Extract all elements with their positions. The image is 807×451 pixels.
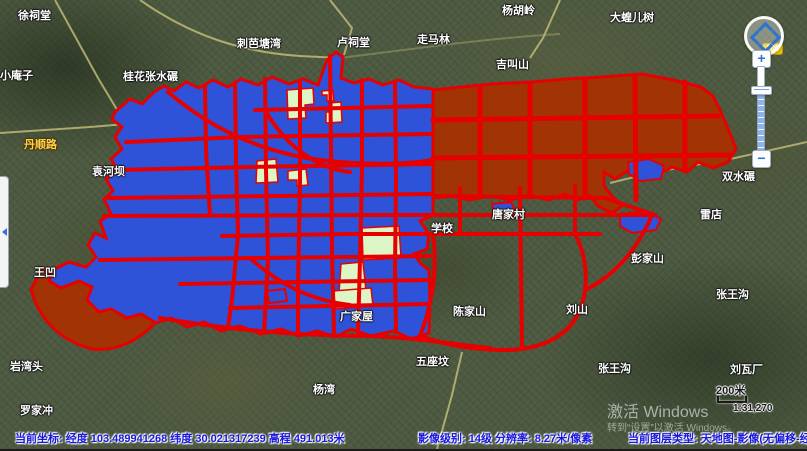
map-place-label: 岩湾头: [10, 358, 43, 374]
map-place-label: 张王沟: [716, 286, 749, 302]
status-image-info: 影像级别: 14级 分辨率: 8.27米/像素: [418, 430, 592, 446]
map-place-label: 大蝗儿树: [610, 9, 654, 25]
scale-bar-icon: [717, 396, 747, 403]
map-place-label: 徐祠堂: [18, 7, 51, 23]
map-place-label: 彭家山: [631, 250, 664, 266]
map-place-label: 广家屋: [340, 308, 373, 324]
map-place-label: 刘山: [566, 301, 588, 317]
map-place-label: 五座坟: [416, 353, 449, 369]
planning-overlay-layer: [0, 0, 807, 449]
scale-ratio-label: 1:31,270: [733, 403, 772, 414]
zoom-slider-track-lower[interactable]: [757, 93, 765, 153]
map-place-label: 雷店: [700, 206, 722, 222]
map-place-label: 王凹: [34, 264, 56, 280]
sidebar-collapse-tab[interactable]: [0, 176, 9, 288]
map-place-label: 刘瓦厂: [730, 361, 763, 377]
map-place-label: 双水碾: [722, 168, 755, 184]
map-place-label: 张王沟: [598, 360, 631, 376]
map-place-label: 罗家冲: [20, 402, 53, 418]
status-coordinates: 当前坐标: 经度 103.489941268 纬度 30.021317239 高…: [15, 430, 345, 446]
map-place-label: 吉叫山: [496, 56, 529, 72]
map-place-label: 卢祠堂: [337, 34, 370, 50]
map-place-label: 走马林: [417, 31, 450, 47]
map-place-label: 袁河坝: [92, 163, 125, 179]
map-window: 徐祠堂 小庵子 桂花张水碾 刺芭塘湾 卢祠堂 走马林 杨胡岭 大蝗儿树 吉叫山 …: [0, 0, 807, 451]
map-place-label: 小庵子: [0, 67, 33, 83]
zoom-slider-handle[interactable]: [751, 86, 772, 95]
map-place-label: 杨胡岭: [502, 2, 535, 18]
zoom-out-button[interactable]: −: [752, 150, 771, 168]
map-place-label: 刺芭塘湾: [237, 35, 281, 51]
map-road-label: 丹顺路: [24, 136, 57, 152]
map-place-label: 唐家村: [492, 206, 525, 222]
status-layer-info: 当前图层类型: 天地图-影像(无偏移-经: [628, 430, 807, 446]
map-place-label: 桂花张水碾: [123, 68, 178, 84]
map-place-label: 杨湾: [313, 381, 335, 397]
map-place-label: 陈家山: [453, 303, 486, 319]
map-place-label: 学校: [431, 220, 453, 236]
collapse-arrow-icon: [2, 228, 7, 236]
